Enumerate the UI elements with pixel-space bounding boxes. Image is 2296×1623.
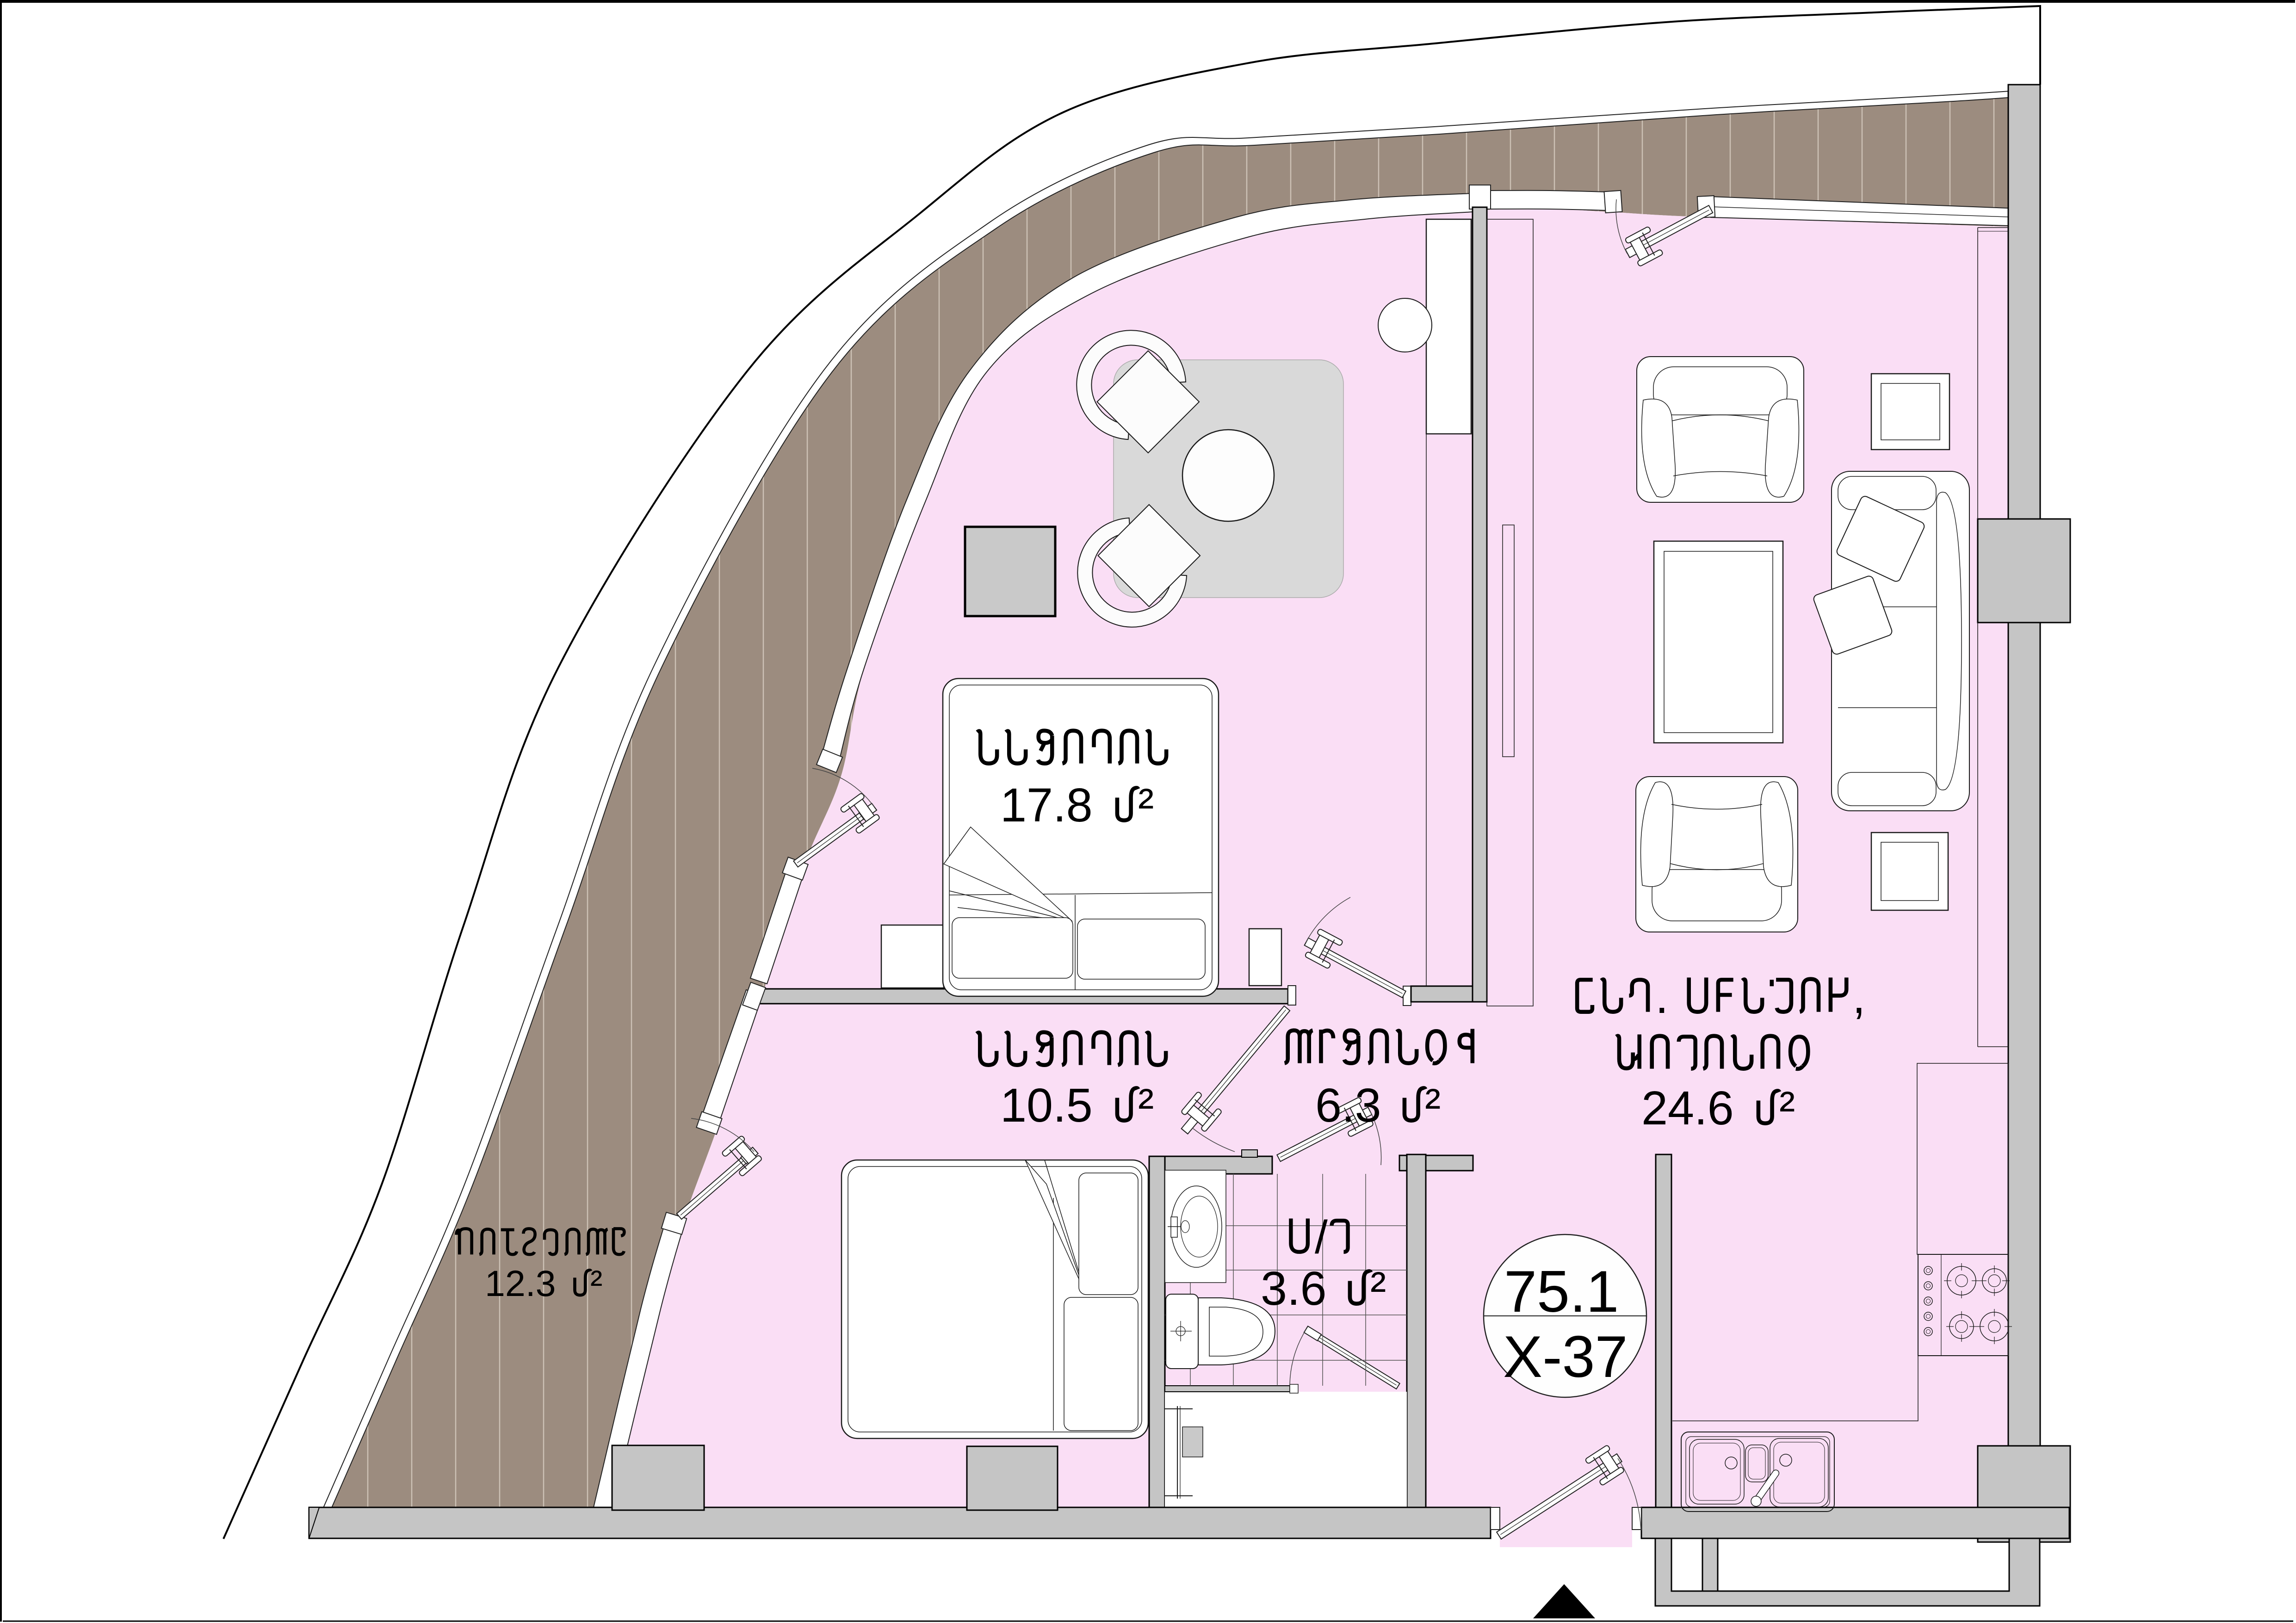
svg-text:75.1: 75.1 — [1504, 1259, 1619, 1325]
svg-text:²: ² — [1138, 778, 1154, 832]
svg-text:X-37: X-37 — [1503, 1324, 1628, 1390]
svg-text:²: ² — [1370, 1262, 1386, 1315]
svg-text:10.5: 10.5 — [1000, 1079, 1093, 1132]
svg-text:²: ² — [590, 1263, 602, 1304]
svg-text:3.6: 3.6 — [1261, 1262, 1327, 1315]
svg-text:17.8: 17.8 — [1000, 778, 1093, 832]
svg-text:²: ² — [1779, 1081, 1795, 1135]
svg-text:²: ² — [1425, 1079, 1441, 1132]
svg-text:6.3: 6.3 — [1315, 1079, 1381, 1132]
svg-text:,: , — [1852, 970, 1866, 1023]
svg-text:12.3: 12.3 — [485, 1263, 556, 1304]
svg-text:24.6: 24.6 — [1641, 1081, 1734, 1135]
svg-text:²: ² — [1138, 1079, 1154, 1132]
svg-text:/: / — [1315, 1211, 1328, 1263]
svg-text:.: . — [1655, 970, 1669, 1023]
